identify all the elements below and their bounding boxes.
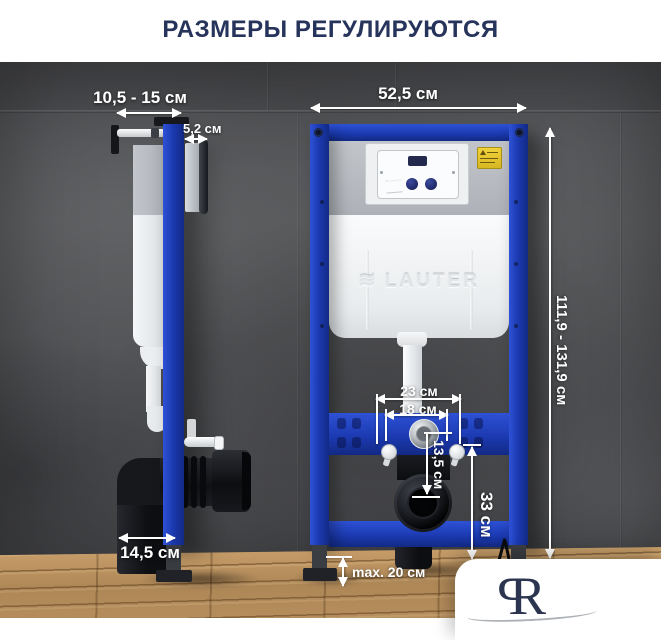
dim-tick (446, 409, 448, 441)
mounting-stud-cap (214, 436, 224, 450)
crossbar-slot (474, 418, 483, 429)
mounting-stud-left (381, 444, 397, 460)
dim-tick (385, 409, 387, 441)
warning-sticker (477, 147, 502, 169)
dim-bracket-depth-arrow (185, 138, 207, 140)
post-hole (514, 200, 518, 204)
panel-display-window (408, 156, 427, 166)
panel-screw (380, 171, 383, 174)
dim-frame-width-arrow (311, 107, 526, 109)
drain-cuff-edge (242, 452, 251, 510)
brand-card: PR (455, 559, 661, 640)
sticker-line (480, 158, 498, 159)
foot-plate-left (303, 568, 337, 581)
cistern-side-upper (133, 145, 163, 215)
dim-bolt-outer-arrow (376, 398, 461, 400)
warning-triangle-icon (480, 150, 486, 155)
dim-depth-range-label: 10,5 - 15 см (75, 88, 205, 108)
flush-button-right (425, 178, 437, 190)
cistern-side-body (133, 215, 163, 347)
post-hole (320, 200, 324, 204)
post-hole (320, 324, 324, 328)
cistern-logo: LAUTER (344, 268, 494, 293)
dim-bolt-outer-label: 23 см (384, 383, 454, 399)
crossbar-slot (352, 418, 361, 429)
cistern-logo-text: LAUTER (385, 271, 480, 292)
wave-icon (358, 271, 385, 292)
frame-top-rail (310, 124, 528, 141)
crossbar-slot (337, 418, 346, 429)
stud-holder-side (187, 419, 196, 439)
pipe-rib (191, 456, 197, 508)
dim-base-depth-label: 14,5 см (110, 543, 190, 563)
crossbar-slot (337, 437, 346, 448)
dim-tick (376, 394, 378, 444)
dim-tick (412, 496, 440, 498)
dim-leg-adjust-label: max. 20 см (352, 564, 447, 580)
dim-outlet-height-arrow (471, 447, 473, 559)
dim-height-range-arrow (549, 128, 551, 558)
frame-post-left (310, 124, 329, 545)
crossbar-slot (352, 437, 361, 448)
dim-tick (424, 432, 452, 434)
dim-leg-adjust-arrow (342, 558, 344, 586)
corner-screw (515, 128, 524, 137)
frame-post-right (509, 124, 528, 545)
flush-button-left (406, 178, 418, 190)
post-hole (320, 262, 324, 266)
corner-screw (314, 128, 323, 137)
dim-outlet-offset-label: 13,5 см (431, 440, 447, 489)
panel-screw (452, 171, 455, 174)
dim-height-range-label: 111,9 - 131,9 см (553, 295, 570, 405)
dim-depth-range-arrow (117, 112, 181, 114)
sticker-line (487, 152, 498, 153)
dim-outlet-height-label: 33 см (476, 492, 496, 538)
flush-plate-bracket-edge (199, 140, 208, 214)
page-title: РАЗМЕРЫ РЕГУЛИРУЮТСЯ (0, 16, 661, 44)
mounting-stud-right (449, 444, 465, 460)
panel-markings (385, 179, 402, 193)
foot-plate-side (156, 570, 192, 582)
pipe-rib (200, 456, 206, 508)
bracket-rod-clamp (151, 128, 159, 138)
post-hole (514, 262, 518, 266)
sticker-line (480, 162, 495, 163)
dim-base-depth-arrow (119, 537, 175, 539)
dim-frame-width-label: 52,5 см (343, 84, 473, 104)
product-diagram: РАЗМЕРЫ РЕГУЛИРУЮТСЯ (0, 0, 661, 640)
dim-tick (459, 394, 461, 444)
frame-post-side (163, 124, 184, 545)
post-hole (514, 324, 518, 328)
fitting-inner (416, 426, 432, 442)
dim-outlet-offset-arrow (426, 434, 428, 494)
dim-bolt-inner-arrow (385, 414, 448, 416)
